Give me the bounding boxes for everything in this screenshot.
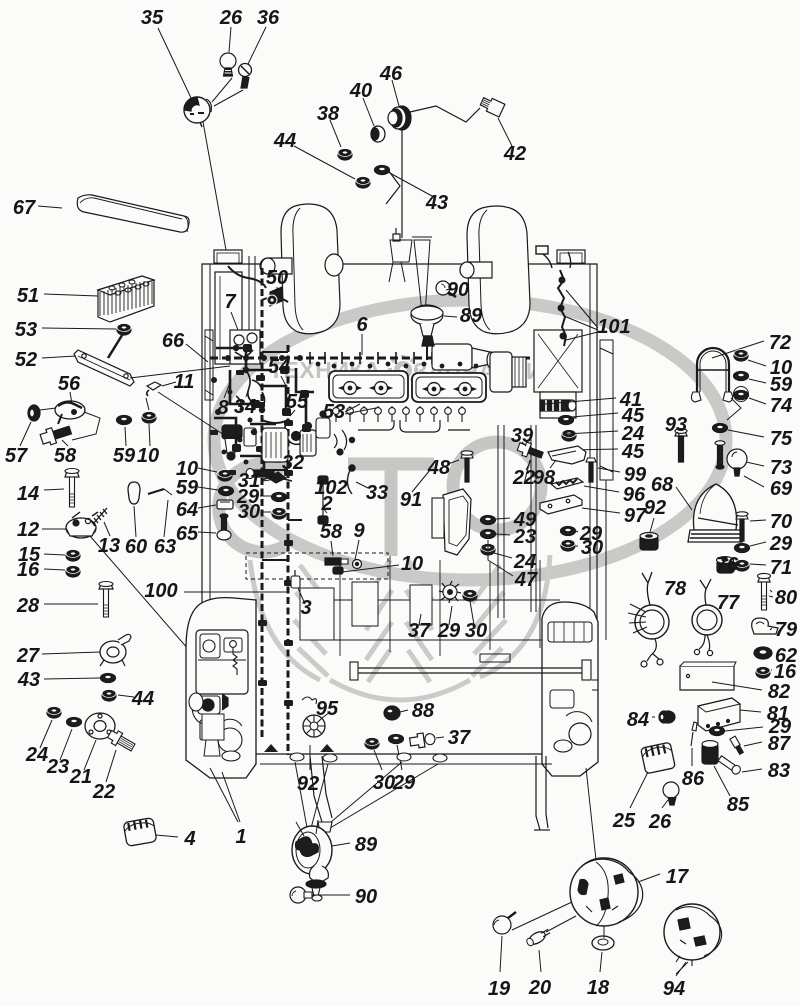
svg-text:7: 7 [224,291,236,313]
svg-text:32: 32 [282,452,304,474]
svg-text:58: 58 [54,445,77,467]
svg-text:10: 10 [137,445,159,467]
svg-text:9: 9 [353,520,365,542]
svg-text:79: 79 [775,619,798,641]
svg-text:30: 30 [581,537,603,559]
svg-text:90: 90 [447,279,469,301]
svg-text:12: 12 [17,519,39,541]
svg-text:50: 50 [266,267,288,289]
svg-text:96: 96 [623,484,646,506]
svg-text:3: 3 [300,597,311,619]
svg-text:35: 35 [141,7,164,29]
svg-text:89: 89 [460,305,483,327]
svg-text:58: 58 [320,521,343,543]
svg-text:71: 71 [770,557,792,579]
svg-text:53: 53 [15,319,37,341]
svg-text:92: 92 [644,497,666,519]
svg-text:43: 43 [425,192,448,214]
svg-text:30: 30 [465,620,487,642]
svg-text:42: 42 [503,143,526,165]
svg-text:59: 59 [113,445,136,467]
svg-text:18: 18 [587,977,610,999]
svg-text:29: 29 [769,533,793,555]
svg-text:4: 4 [183,828,195,850]
svg-text:21: 21 [69,766,92,788]
svg-text:91: 91 [400,489,422,511]
svg-text:36: 36 [257,7,280,29]
svg-text:16: 16 [774,661,797,683]
svg-text:76: 76 [716,554,739,576]
svg-text:14: 14 [17,483,39,505]
svg-text:30: 30 [373,772,395,794]
svg-text:44: 44 [273,130,296,152]
svg-text:34: 34 [234,396,256,418]
svg-text:20: 20 [528,977,551,999]
svg-text:19: 19 [488,978,511,1000]
svg-text:56: 56 [58,373,81,395]
svg-text:17: 17 [666,866,689,888]
svg-text:75: 75 [770,428,793,450]
svg-text:78: 78 [664,578,687,600]
svg-text:100: 100 [144,580,177,602]
svg-text:43: 43 [17,669,40,691]
svg-text:90: 90 [355,886,377,908]
svg-text:29: 29 [392,772,416,794]
svg-text:69: 69 [770,478,793,500]
svg-text:23: 23 [46,756,69,778]
svg-text:63: 63 [154,536,176,558]
svg-text:51: 51 [17,285,39,307]
svg-text:74: 74 [770,395,792,417]
svg-text:1: 1 [235,826,246,848]
svg-text:85: 85 [727,794,750,816]
svg-text:66: 66 [162,330,185,352]
svg-text:80: 80 [775,587,797,609]
svg-text:101: 101 [597,316,630,338]
svg-text:72: 72 [769,332,791,354]
svg-text:8: 8 [217,397,229,419]
svg-text:99: 99 [624,464,647,486]
svg-text:95: 95 [316,698,339,720]
svg-text:67: 67 [13,197,36,219]
svg-text:55: 55 [286,391,309,413]
svg-text:73: 73 [770,457,792,479]
svg-text:92: 92 [297,773,319,795]
svg-text:77: 77 [717,592,740,614]
svg-text:22: 22 [512,467,535,489]
svg-text:54: 54 [268,356,290,378]
svg-text:10: 10 [401,553,423,575]
svg-text:89: 89 [355,834,378,856]
svg-text:30: 30 [238,501,260,523]
svg-text:94: 94 [663,978,685,1000]
svg-text:28: 28 [16,595,40,617]
svg-text:37: 37 [448,727,471,749]
svg-text:98: 98 [533,467,556,489]
svg-text:26: 26 [219,7,243,29]
svg-text:44: 44 [131,688,154,710]
svg-text:59: 59 [770,374,793,396]
svg-text:64: 64 [176,499,198,521]
svg-text:27: 27 [16,645,40,667]
svg-text:40: 40 [349,80,372,102]
svg-text:38: 38 [317,103,340,125]
svg-text:46: 46 [379,63,403,85]
svg-text:24: 24 [25,744,48,766]
svg-text:53: 53 [323,401,345,423]
svg-text:47: 47 [514,569,538,591]
svg-text:11: 11 [174,371,195,393]
svg-text:93: 93 [665,414,687,436]
svg-text:52: 52 [15,349,37,371]
svg-text:88: 88 [412,700,435,722]
svg-text:6: 6 [356,314,368,336]
svg-text:57: 57 [5,445,28,467]
svg-text:84: 84 [627,709,649,731]
svg-text:16: 16 [17,559,40,581]
svg-text:87: 87 [768,733,791,755]
svg-text:86: 86 [682,768,705,790]
svg-text:26: 26 [648,811,672,833]
svg-text:45: 45 [621,441,645,463]
svg-text:13: 13 [98,535,120,557]
svg-text:33: 33 [366,482,388,504]
svg-text:60: 60 [125,536,147,558]
svg-text:68: 68 [651,474,674,496]
svg-text:70: 70 [770,511,792,533]
svg-text:65: 65 [176,523,199,545]
svg-text:59: 59 [176,477,199,499]
svg-text:22: 22 [92,781,115,803]
svg-text:39: 39 [511,425,534,447]
svg-text:25: 25 [612,810,636,832]
svg-text:48: 48 [427,457,451,479]
svg-text:82: 82 [768,681,790,703]
svg-text:23: 23 [513,526,536,548]
svg-text:83: 83 [768,760,790,782]
